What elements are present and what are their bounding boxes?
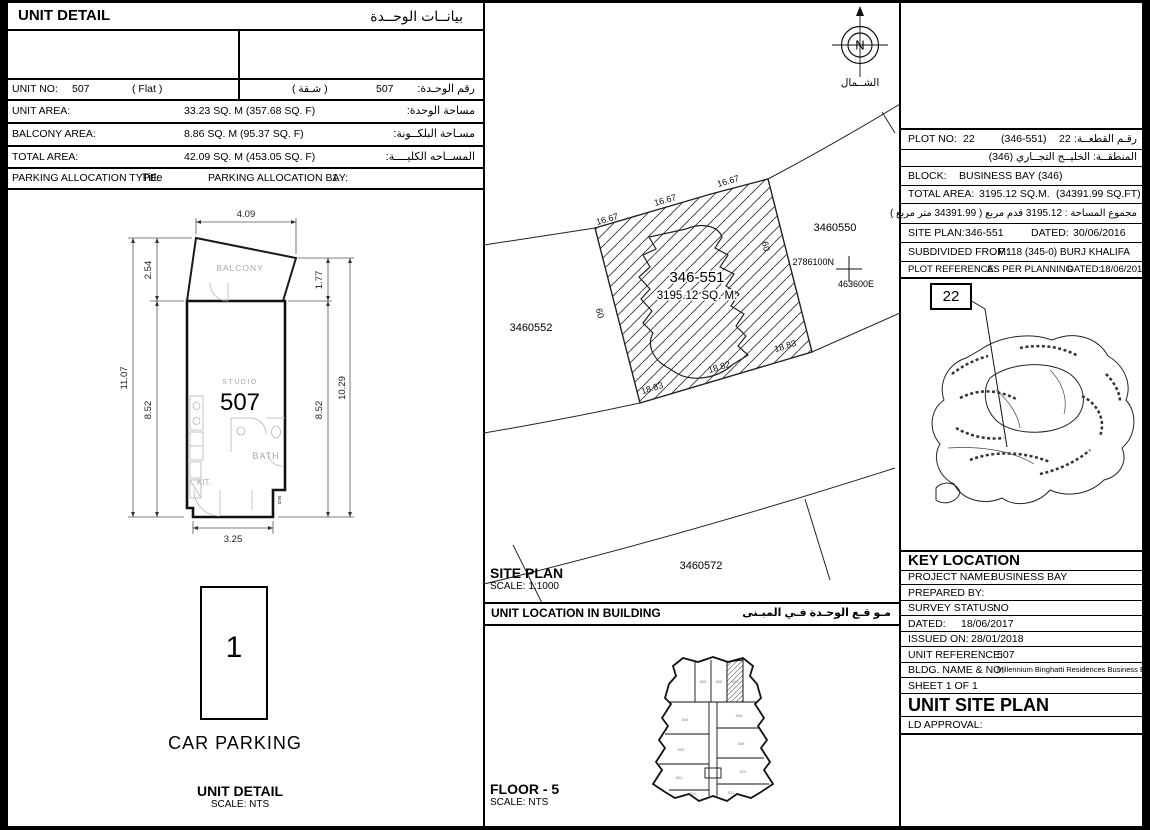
key-location-title: KEY LOCATION	[908, 552, 1020, 570]
unit-cell-507: 507	[732, 679, 739, 684]
unit-detail-caption-scale: SCALE: NTS	[150, 799, 330, 811]
map-outline	[932, 336, 1134, 504]
dim-unit-right: 8.52	[314, 401, 325, 420]
unit-location-header: UNIT LOCATION IN BUILDING مـو قـع الوحـد…	[485, 602, 899, 626]
block-value: BUSINESS BAY (346)	[959, 168, 1063, 185]
balcony-label: BALCONY	[216, 263, 264, 273]
plot-no-value-2: 22	[1059, 130, 1071, 149]
unit-cell-505: 505	[700, 679, 707, 684]
ld-approval-label: LD APPROVAL:	[908, 718, 983, 733]
site-plan-dated-label: DATED:	[1031, 225, 1069, 242]
unit-type: ( Flat )	[132, 80, 162, 99]
balcony-area-row: BALCONY AREA: 8.86 SQ. M (95.37 SQ. F) م…	[8, 124, 483, 147]
site-plan-caption-title: SITE PLAN	[490, 566, 563, 581]
border-right	[1142, 0, 1150, 830]
dated-row: DATED: 18/06/2017	[901, 617, 1142, 632]
floor-caption-scale: SCALE: NTS	[490, 797, 559, 809]
plot-reference-dated-label: DATED:	[1067, 263, 1101, 277]
balcony-area-label-arabic: مسـاحة البلكــونة:	[393, 124, 475, 145]
plot-total-area-label: TOTAL AREA:	[908, 186, 974, 203]
total-area-arabic-row: مجموع المساحة : 3195.12 قدم مربع ( 34391…	[901, 205, 1142, 224]
sheet-row: SHEET 1 OF 1	[901, 679, 1142, 694]
dim-bottom: 3.25	[224, 534, 243, 545]
studio-label: STUDIO	[222, 379, 257, 386]
unit-no-value: 507	[72, 80, 90, 99]
plot-reference-dated-value: 18/06/2017	[1100, 263, 1148, 277]
site-plan-row: SITE PLAN: 346-551 DATED: 30/06/2016	[901, 225, 1142, 243]
unit-cell-511: 511	[728, 790, 735, 795]
plot-no-value: 22	[963, 130, 975, 149]
survey-status-value: NO	[993, 601, 1009, 615]
unit-reference-value: 507	[997, 648, 1015, 662]
unit-area-value: 33.23 SQ. M (357.68 SQ. F)	[184, 101, 315, 122]
dated-value: 18/06/2017	[961, 617, 1014, 631]
bath-label: BATH	[252, 451, 279, 461]
floor-caption: FLOOR - 5 SCALE: NTS	[490, 782, 559, 809]
project-name-value: BUSINESS BAY	[991, 570, 1067, 584]
unit-cell-501: 501	[690, 791, 697, 796]
map-parcel-clusters	[952, 346, 1120, 474]
subdivided-label: SUBDIVIDED FROM:	[908, 244, 1009, 261]
plot-reference-label: PLOT REFERENCE:	[908, 263, 997, 277]
plot-no-label-arabic: رقـم القطعــة:	[1074, 130, 1137, 149]
total-area-label: TOTAL AREA:	[12, 147, 78, 167]
unit-detail-caption-title: UNIT DETAIL	[150, 784, 330, 799]
balcony-area-value: 8.86 SQ. M (95.37 SQ. F)	[184, 124, 304, 145]
car-parking-bay-number: 1	[226, 631, 243, 664]
unit-area-row: UNIT AREA: 33.23 SQ. M (357.68 SQ. F) مس…	[8, 101, 483, 124]
bldg-name-label: BLDG. NAME & NO:	[908, 663, 1004, 677]
plot-paren: (346-551)	[1001, 130, 1047, 149]
parcel-3460550: 3460550	[814, 222, 857, 234]
plot-no-row: PLOT NO: 22 (346-551) 22 رقـم القطعــة:	[901, 128, 1142, 150]
parking-type-label: PARKING ALLOCATION TYPE:	[12, 169, 160, 188]
plot-no-label: PLOT NO:	[908, 130, 957, 149]
site-plan-caption-scale: SCALE: 1:1000	[490, 581, 563, 593]
north-label-arabic: الشــمال	[841, 77, 880, 89]
floor-plan-drawing: BALCONY STUDIO 507 BATH KIT. M.D 4.09 2.…	[100, 200, 390, 560]
issued-on-label: ISSUED ON:	[908, 632, 969, 646]
unit-site-plan-title: UNIT SITE PLAN	[908, 694, 1049, 716]
site-plan-caption: SITE PLAN SCALE: 1:1000	[490, 566, 563, 593]
dim-unit-left: 8.52	[143, 401, 154, 420]
unit-cell-503: 503	[678, 747, 685, 752]
balcony-area-label: BALCONY AREA:	[12, 124, 96, 145]
total-area-label-arabic: المســاحه الكليــــة:	[386, 147, 475, 167]
survey-status-label: SURVEY STATUS:	[908, 601, 997, 615]
plot-total-area-sqm: 3195.12 SQ.M.	[979, 186, 1050, 203]
parking-allocation-row: PARKING ALLOCATION TYPE: Title PARKING A…	[8, 169, 483, 190]
unit-cell-509: 509	[738, 741, 745, 746]
sheet-label: SHEET 1 OF 1	[908, 679, 978, 693]
unit-no-label: UNIT NO:	[12, 80, 58, 99]
plot-number-label: 346-551	[669, 269, 724, 286]
building-outline	[653, 657, 773, 801]
parking-bay-label: PARKING ALLOCATION BAY:	[208, 169, 348, 188]
parking-type-value: Title	[142, 169, 162, 188]
dim-top: 4.09	[237, 209, 256, 220]
map-minor-roads	[948, 370, 1065, 464]
bldg-name-row: BLDG. NAME & NO: Millennium Binghatti Re…	[901, 663, 1142, 678]
north-letter: N	[855, 38, 864, 53]
site-plan-dated-value: 30/06/2016	[1073, 225, 1126, 242]
unit-site-plan-document: UNIT DETAIL بيانــات الوحــدة UNIT NO: 5…	[0, 0, 1150, 830]
unit-no-value-arabic-cell: 507	[376, 80, 394, 99]
prepared-by-label: PREPARED BY:	[908, 586, 984, 600]
plot-total-area-sqft: (34391.99 SQ.FT)	[1056, 186, 1141, 203]
survey-status-row: SURVEY STATUS: NO	[901, 601, 1142, 616]
unit-cell-502: 502	[676, 775, 683, 780]
issued-on-row: ISSUED ON: 28/01/2018	[901, 632, 1142, 647]
unit-number-label: 507	[220, 389, 260, 416]
building-floor-drawing: 505 506 507 504 503 502 501 508 509 510 …	[643, 650, 779, 806]
plot-reference-row: PLOT REFERENCE: AS PER PLANNING DATED: 1…	[901, 263, 1142, 279]
unit-no-label-arabic: رقم الوحـدة:	[417, 80, 475, 99]
md-label: M.D	[277, 496, 282, 505]
block-label: BLOCK:	[908, 168, 947, 185]
parking-bay-value: 1	[332, 169, 338, 188]
bldg-name-value: Millennium Binghatti Residences Business…	[997, 663, 1150, 677]
unit-reference-row: UNIT REFERENCE: 507	[901, 648, 1142, 663]
car-parking-label: CAR PARKING	[145, 733, 325, 754]
subdivided-value: P.118 (345-0) BURJ KHALIFA	[998, 244, 1130, 261]
unit-area-label-arabic: مساحة الوحدة:	[407, 101, 475, 122]
subdivided-row: SUBDIVIDED FROM: P.118 (345-0) BURJ KHAL…	[901, 244, 1142, 262]
unit-no-row: UNIT NO: 507 ( Flat ) ( شـقة ) 507 رقم ا…	[8, 80, 483, 101]
dated-label: DATED:	[908, 617, 946, 631]
district-row: المنطقــة: الخليــج التجــاري (346)	[901, 149, 1142, 167]
plot-dim-left: 60	[594, 307, 606, 319]
page-title-arabic: بيانــات الوحــدة	[370, 3, 463, 29]
project-name-label: PROJECT NAME:	[908, 570, 993, 584]
easting-label: 463600E	[838, 279, 874, 289]
page-title: UNIT DETAIL	[18, 3, 110, 29]
parcel-3460572: 3460572	[680, 560, 723, 572]
unit-cell-504: 504	[682, 717, 689, 722]
unit-site-plan-row: UNIT SITE PLAN	[901, 694, 1142, 717]
ld-approval-row: LD APPROVAL:	[901, 718, 1142, 735]
unit-area-label: UNIT AREA:	[12, 101, 70, 122]
car-parking-bay: 1	[200, 586, 268, 720]
unit-location-title-arabic: مـو قـع الوحـدة فـي المبـنى	[742, 604, 891, 623]
border-left	[0, 0, 8, 830]
unit-reference-label: UNIT REFERENCE:	[908, 648, 1003, 662]
kitchen-label: KIT.	[197, 478, 211, 487]
dim-overall-right: 10.29	[337, 376, 348, 400]
unit-cell-510: 510	[740, 769, 747, 774]
empty-header-box	[8, 31, 483, 80]
dim-balcony-right: 1.77	[314, 271, 325, 290]
dim-overall-left: 11.07	[119, 366, 130, 389]
total-area-row: TOTAL AREA: 42.09 SQ. M (453.05 SQ. F) ا…	[8, 147, 483, 169]
unit-location-title: UNIT LOCATION IN BUILDING	[491, 604, 661, 623]
unit-type-arabic: ( شـقة )	[292, 80, 328, 99]
parcel-3460552: 3460552	[510, 322, 553, 334]
prepared-by-row: PREPARED BY:	[901, 586, 1142, 601]
northing-label: 2786100N	[792, 257, 834, 267]
issued-on-value: 28/01/2018	[971, 632, 1024, 646]
unit-cell-508: 508	[736, 713, 743, 718]
plot-reference-value: AS PER PLANNING	[987, 263, 1073, 277]
unit-detail-caption: UNIT DETAIL SCALE: NTS	[150, 784, 330, 811]
total-area-arabic: مجموع المساحة : 3195.12 قدم مربع ( 34391…	[890, 208, 1142, 219]
block-row: BLOCK: BUSINESS BAY (346)	[901, 168, 1142, 186]
total-area-value: 42.09 SQ. M (453.05 SQ. F)	[184, 147, 315, 167]
divider-left-mid	[483, 3, 485, 826]
site-plan-ref-value: 346-551	[965, 225, 1004, 242]
dim-balcony-left: 2.54	[143, 261, 154, 280]
site-plan-drawing: N الشــمال 346-551 3195.12 SQ. M. 16.67 …	[486, 3, 898, 602]
border-bottom	[0, 826, 1150, 830]
site-plan-ref-label: SITE PLAN:	[908, 225, 965, 242]
total-area-row-right: TOTAL AREA: 3195.12 SQ.M. (34391.99 SQ.F…	[901, 186, 1142, 204]
project-name-row: PROJECT NAME: BUSINESS BAY	[901, 570, 1142, 585]
unit-detail-header-row: UNIT DETAIL بيانــات الوحــدة	[8, 3, 483, 31]
plot-area-label: 3195.12 SQ. M.	[657, 290, 738, 302]
floor-caption-title: FLOOR - 5	[490, 782, 559, 797]
district-arabic: المنطقــة: الخليــج التجــاري (346)	[989, 151, 1142, 163]
key-location-header: KEY LOCATION	[901, 550, 1142, 571]
key-location-map	[900, 278, 1142, 550]
unit-cell-506: 506	[716, 679, 723, 684]
